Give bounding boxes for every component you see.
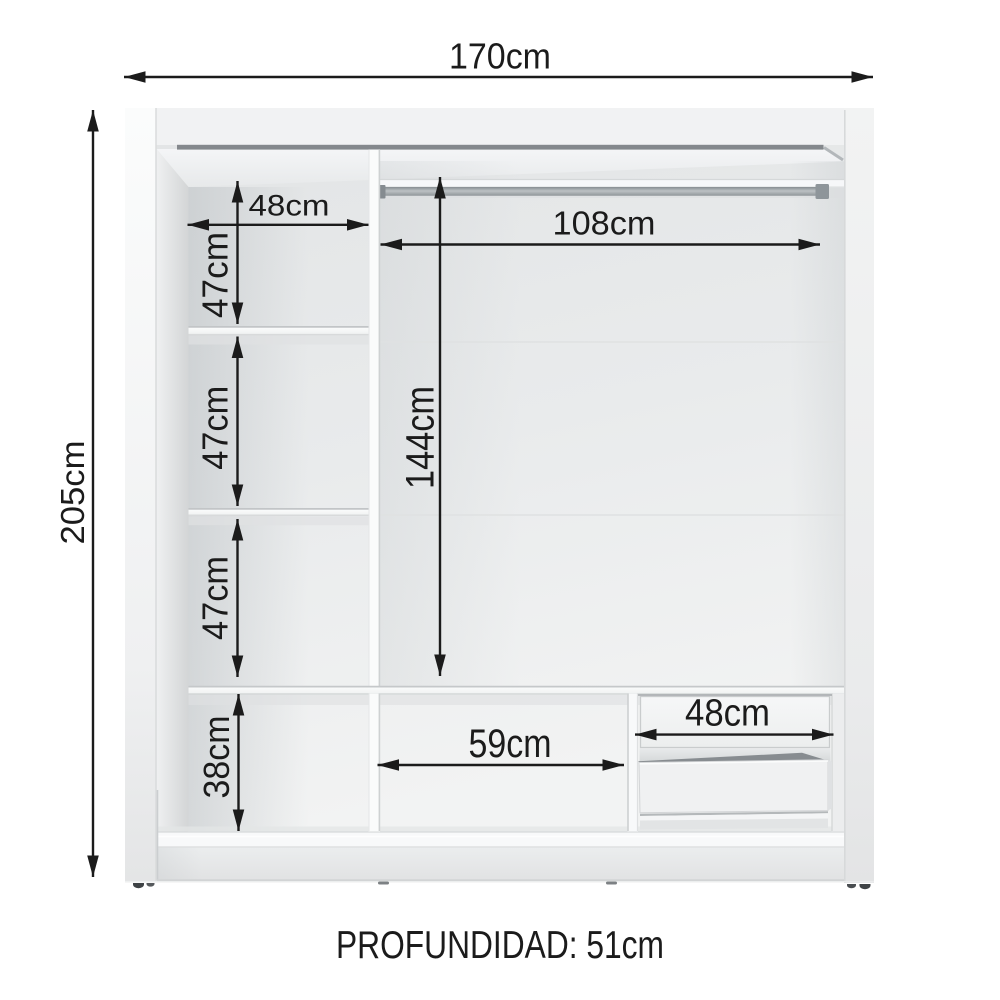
svg-text:205cm: 205cm: [54, 441, 91, 545]
svg-text:48cm: 48cm: [249, 190, 330, 223]
svg-text:47cm: 47cm: [195, 386, 236, 470]
svg-text:170cm: 170cm: [449, 36, 551, 77]
svg-text:108cm: 108cm: [553, 205, 656, 242]
svg-text:47cm: 47cm: [195, 232, 236, 318]
svg-text:47cm: 47cm: [195, 556, 236, 640]
svg-text:38cm: 38cm: [196, 716, 237, 799]
svg-text:59cm: 59cm: [469, 722, 552, 766]
svg-text:144cm: 144cm: [399, 386, 443, 489]
svg-text:PROFUNDIDAD: 51cm: PROFUNDIDAD: 51cm: [336, 924, 664, 967]
svg-text:48cm: 48cm: [685, 692, 770, 734]
